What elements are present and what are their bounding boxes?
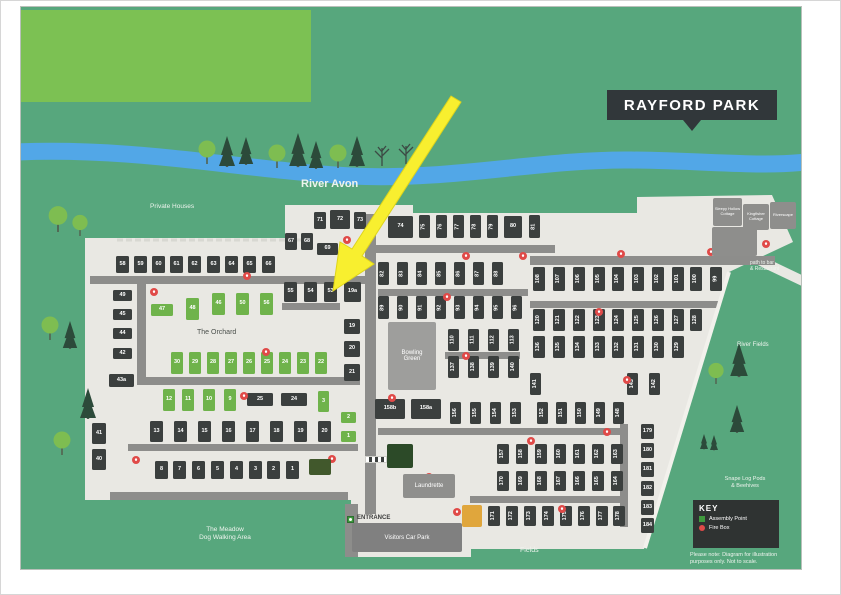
river	[21, 151, 801, 176]
plot-20: 20	[344, 341, 360, 357]
fields-label: Fields	[520, 547, 539, 556]
visitors-car-park: Visitors Car Park	[352, 523, 462, 552]
plot-181: 181	[641, 462, 654, 477]
plot-96: 96	[511, 296, 522, 319]
plot-66: 66	[262, 256, 275, 273]
plot-174: 174	[542, 506, 554, 526]
plot-29: 29	[189, 352, 201, 374]
assembly-point-icon	[699, 516, 705, 522]
plot-134: 134	[573, 336, 585, 358]
plot-4: 4	[230, 461, 243, 479]
cottage-sleepy-hollow: Sleepy Hollow Cottage	[713, 198, 742, 226]
plot-157: 157	[497, 444, 509, 464]
fire-box-marker	[243, 272, 251, 280]
plot-100: 100	[690, 267, 702, 291]
scanned-page: 5859606162636465666768697172737475767778…	[0, 0, 841, 595]
plot-122: 122	[573, 309, 585, 331]
plot-179: 179	[641, 424, 654, 439]
fire-box-marker	[132, 456, 140, 464]
deciduous-tree-icon	[708, 363, 723, 384]
plot-58: 58	[116, 256, 129, 273]
key-fire-row: Fire Box	[699, 525, 773, 531]
redaction-block	[21, 10, 311, 102]
plot-127: 127	[672, 309, 684, 331]
meadow-label: The Meadow Dog Walking Area	[165, 526, 285, 542]
plot-183: 183	[641, 500, 654, 515]
plot-124: 124	[612, 309, 624, 331]
fire-box-marker	[462, 352, 470, 360]
plot-6: 6	[192, 461, 205, 479]
plot-99: 99	[710, 267, 722, 291]
plot-152: 152	[537, 402, 548, 424]
plot-142: 142	[649, 373, 660, 395]
key-assembly-row: Assembly Point	[699, 516, 773, 522]
plot-112: 112	[488, 329, 499, 351]
plot-19a: 19a	[344, 282, 361, 302]
conifer-tree-icon	[730, 405, 744, 433]
plot-16: 16	[222, 421, 235, 442]
plot-41: 41	[92, 423, 106, 444]
fire-box-marker	[603, 428, 611, 436]
title-text: RAYFORD PARK	[624, 97, 760, 114]
plot-11: 11	[182, 389, 194, 411]
plot-182: 182	[641, 481, 654, 496]
plot-110: 110	[448, 329, 459, 351]
plot-158a: 158a	[411, 399, 441, 419]
plot-130: 130	[652, 336, 664, 358]
plot-78: 78	[470, 215, 481, 238]
plot-101: 101	[672, 267, 684, 291]
plot-72: 72	[330, 210, 350, 229]
fire-box-marker	[617, 250, 625, 258]
plot-75: 75	[419, 215, 430, 238]
plot-139: 139	[488, 356, 499, 378]
plot-168: 168	[535, 471, 547, 491]
plot-28: 28	[207, 352, 219, 374]
conifer-tree-icon	[219, 136, 235, 167]
plot-94: 94	[473, 296, 484, 319]
plot-151: 151	[556, 402, 567, 424]
deciduous-tree-icon	[49, 206, 68, 232]
plot-77: 77	[453, 215, 464, 238]
plot-30: 30	[171, 352, 183, 374]
site-map: 5859606162636465666768697172737475767778…	[21, 7, 801, 569]
plot-111: 111	[468, 329, 479, 351]
hall-building	[309, 459, 331, 475]
fire-box-marker	[343, 236, 351, 244]
plot-105: 105	[593, 267, 605, 291]
plot-50: 50	[236, 293, 249, 315]
plot-3: 3	[318, 391, 329, 412]
plot-155: 155	[470, 402, 481, 424]
plot-79: 79	[487, 215, 498, 238]
plot-160: 160	[554, 444, 566, 464]
plot-126: 126	[652, 309, 664, 331]
plot-76: 76	[436, 215, 447, 238]
plot-24: 24	[279, 352, 291, 374]
bare-tree-icon	[399, 144, 413, 164]
conifer-tree-icon	[700, 434, 708, 450]
fire-box-marker	[443, 293, 451, 301]
plot-87: 87	[473, 262, 484, 285]
fire-box-marker	[519, 252, 527, 260]
plot-165: 165	[592, 471, 604, 491]
plot-106: 106	[573, 267, 585, 291]
deciduous-tree-icon	[54, 432, 71, 456]
conifer-tree-icon	[63, 321, 77, 349]
conifer-tree-icon	[710, 435, 718, 451]
plot-25: 25	[247, 393, 273, 406]
plot-129: 129	[672, 336, 684, 358]
park-area	[85, 195, 793, 557]
plot-19: 19	[294, 421, 307, 442]
cottages-parking	[712, 227, 757, 256]
plot-170: 170	[497, 471, 509, 491]
plot-40: 40	[92, 449, 106, 470]
fire-box-marker	[150, 288, 158, 296]
barrier	[366, 457, 386, 462]
plot-56: 56	[260, 293, 273, 315]
key-title: KEY	[699, 504, 773, 513]
plot-18: 18	[270, 421, 283, 442]
conifer-tree-icon	[239, 137, 253, 165]
deciduous-tree-icon	[72, 215, 87, 236]
plot-108: 108	[533, 267, 545, 291]
plot-2: 2	[341, 412, 356, 423]
plot-69: 69	[317, 243, 338, 255]
plot-184: 184	[641, 518, 654, 533]
bowling-green: Bowling Green	[388, 322, 436, 390]
reception-building	[387, 444, 413, 468]
plot-26: 26	[243, 352, 255, 374]
assembly-point-marker	[347, 516, 354, 523]
plot-46: 46	[212, 293, 225, 315]
plot-68: 68	[301, 233, 313, 250]
plot-22: 22	[315, 352, 327, 374]
plot-89: 89	[378, 296, 389, 319]
bare-tree-icon	[375, 146, 389, 166]
plot-17: 17	[246, 421, 259, 442]
plot-102: 102	[652, 267, 664, 291]
plot-14: 14	[174, 421, 187, 442]
plot-5: 5	[211, 461, 224, 479]
plot-132: 132	[612, 336, 624, 358]
conifer-tree-icon	[309, 141, 323, 169]
plot-125: 125	[632, 309, 644, 331]
plot-90: 90	[397, 296, 408, 319]
plot-162: 162	[592, 444, 604, 464]
plot-158: 158	[516, 444, 528, 464]
plot-61: 61	[170, 256, 183, 273]
conifer-tree-icon	[289, 133, 307, 167]
plot-169: 169	[516, 471, 528, 491]
plot-80: 80	[504, 216, 522, 238]
plot-20: 20	[318, 421, 331, 442]
plot-74: 74	[388, 216, 413, 238]
fire-box-marker	[527, 437, 535, 445]
plot-173: 173	[524, 506, 536, 526]
plot-85: 85	[435, 262, 446, 285]
plot-95: 95	[492, 296, 503, 319]
plot-161: 161	[573, 444, 585, 464]
plot-131: 131	[632, 336, 644, 358]
private-houses-label: Private Houses	[150, 203, 194, 211]
plot-88: 88	[492, 262, 503, 285]
fire-box-marker	[240, 392, 248, 400]
plot-153: 153	[510, 402, 521, 424]
plot-149: 149	[594, 402, 605, 424]
plot-73: 73	[354, 212, 366, 229]
plot-59: 59	[134, 256, 147, 273]
deciduous-tree-icon	[269, 145, 286, 169]
plot-15: 15	[198, 421, 211, 442]
plot-103: 103	[632, 267, 644, 291]
plot-7: 7	[173, 461, 186, 479]
title-banner: RAYFORD PARK	[607, 90, 777, 120]
plot-21: 21	[344, 364, 360, 381]
plot-67: 67	[285, 233, 297, 250]
plot-138: 138	[468, 356, 479, 378]
fire-box-marker	[595, 308, 603, 316]
plot-45: 45	[113, 309, 132, 320]
plot-107: 107	[553, 267, 565, 291]
path-to-bar-label: path to bar & Restaurant	[750, 260, 801, 273]
plot-64: 64	[225, 256, 238, 273]
plot-140: 140	[508, 356, 519, 378]
fire-box-marker	[623, 376, 631, 384]
fire-box-marker	[453, 508, 461, 516]
plot-1: 1	[341, 431, 356, 442]
plot-133: 133	[593, 336, 605, 358]
plot-156: 156	[450, 402, 461, 424]
plot-2: 2	[267, 461, 280, 479]
plot-104: 104	[612, 267, 624, 291]
plot-91: 91	[416, 296, 427, 319]
plot-19: 19	[344, 319, 360, 334]
bin-store	[462, 505, 482, 527]
plot-171: 171	[488, 506, 500, 526]
plot-49: 49	[113, 290, 132, 301]
plot-23: 23	[297, 352, 309, 374]
plot-12: 12	[163, 389, 175, 411]
fire-box-icon	[699, 525, 705, 531]
plot-148: 148	[613, 402, 624, 424]
plot-44: 44	[113, 328, 132, 339]
key-assembly-label: Assembly Point	[709, 516, 747, 522]
plot-141: 141	[530, 373, 541, 395]
plot-63: 63	[207, 256, 220, 273]
river-avon-label: River Avon	[301, 178, 358, 192]
plot-164: 164	[611, 471, 623, 491]
plot-86: 86	[454, 262, 465, 285]
plot-113: 113	[508, 329, 519, 351]
snape-label: Snape Log Pods & Beehives	[705, 476, 785, 490]
plot-65: 65	[243, 256, 256, 273]
deciduous-tree-icon	[330, 145, 347, 169]
plot-176: 176	[578, 506, 590, 526]
key-fire-label: Fire Box	[709, 525, 729, 531]
plot-166: 166	[573, 471, 585, 491]
plot-120: 120	[533, 309, 545, 331]
plot-13: 13	[150, 421, 163, 442]
plot-178: 178	[613, 506, 625, 526]
cottage-riverscape: Riverscape	[770, 202, 796, 229]
plot-8: 8	[155, 461, 168, 479]
plot-128: 128	[690, 309, 702, 331]
plot-121: 121	[553, 309, 565, 331]
plot-53: 53	[324, 282, 337, 302]
plot-10: 10	[203, 389, 215, 411]
plot-55: 55	[284, 282, 297, 302]
plot-1: 1	[286, 461, 299, 479]
entrance-label: ENTRANCE	[357, 515, 390, 523]
plot-177: 177	[596, 506, 608, 526]
plot-136: 136	[533, 336, 545, 358]
plot-167: 167	[554, 471, 566, 491]
orchard-label: The Orchard	[197, 329, 236, 338]
plot-82: 82	[378, 262, 389, 285]
plot-172: 172	[506, 506, 518, 526]
plot-81: 81	[529, 215, 540, 238]
plot-54: 54	[304, 282, 317, 302]
plot-93: 93	[454, 296, 465, 319]
deciduous-tree-icon	[199, 141, 216, 165]
key-legend: KEY Assembly Point Fire Box	[693, 500, 779, 548]
fire-box-marker	[762, 240, 770, 248]
plot-180: 180	[641, 443, 654, 458]
plot-60: 60	[152, 256, 165, 273]
plot-71: 71	[314, 212, 326, 229]
laundrette-building: Laundrette	[403, 474, 455, 498]
plot-24: 24	[281, 393, 307, 406]
plot-47: 47	[151, 304, 173, 316]
plot-83: 83	[397, 262, 408, 285]
plot-27: 27	[225, 352, 237, 374]
river-fields-label: River Fields	[737, 342, 769, 350]
conifer-tree-icon	[349, 136, 365, 167]
plot-154: 154	[490, 402, 501, 424]
plot-42: 42	[113, 348, 132, 359]
plot-137: 137	[448, 356, 459, 378]
plot-9: 9	[224, 389, 236, 411]
plot-62: 62	[188, 256, 201, 273]
plot-48: 48	[186, 298, 199, 320]
plot-158b: 158b	[375, 399, 405, 419]
note-text: Please note: Diagram for illustration pu…	[690, 552, 801, 566]
plot-3: 3	[249, 461, 262, 479]
fire-box-marker	[262, 348, 270, 356]
plot-135: 135	[553, 336, 565, 358]
fire-box-marker	[558, 505, 566, 513]
fire-box-marker	[388, 394, 396, 402]
plot-150: 150	[575, 402, 586, 424]
deciduous-tree-icon	[42, 317, 59, 341]
conifer-tree-icon	[80, 388, 96, 419]
plot-163: 163	[611, 444, 623, 464]
plot-43a: 43a	[109, 374, 134, 387]
plot-84: 84	[416, 262, 427, 285]
plot-159: 159	[535, 444, 547, 464]
fire-box-marker	[462, 252, 470, 260]
